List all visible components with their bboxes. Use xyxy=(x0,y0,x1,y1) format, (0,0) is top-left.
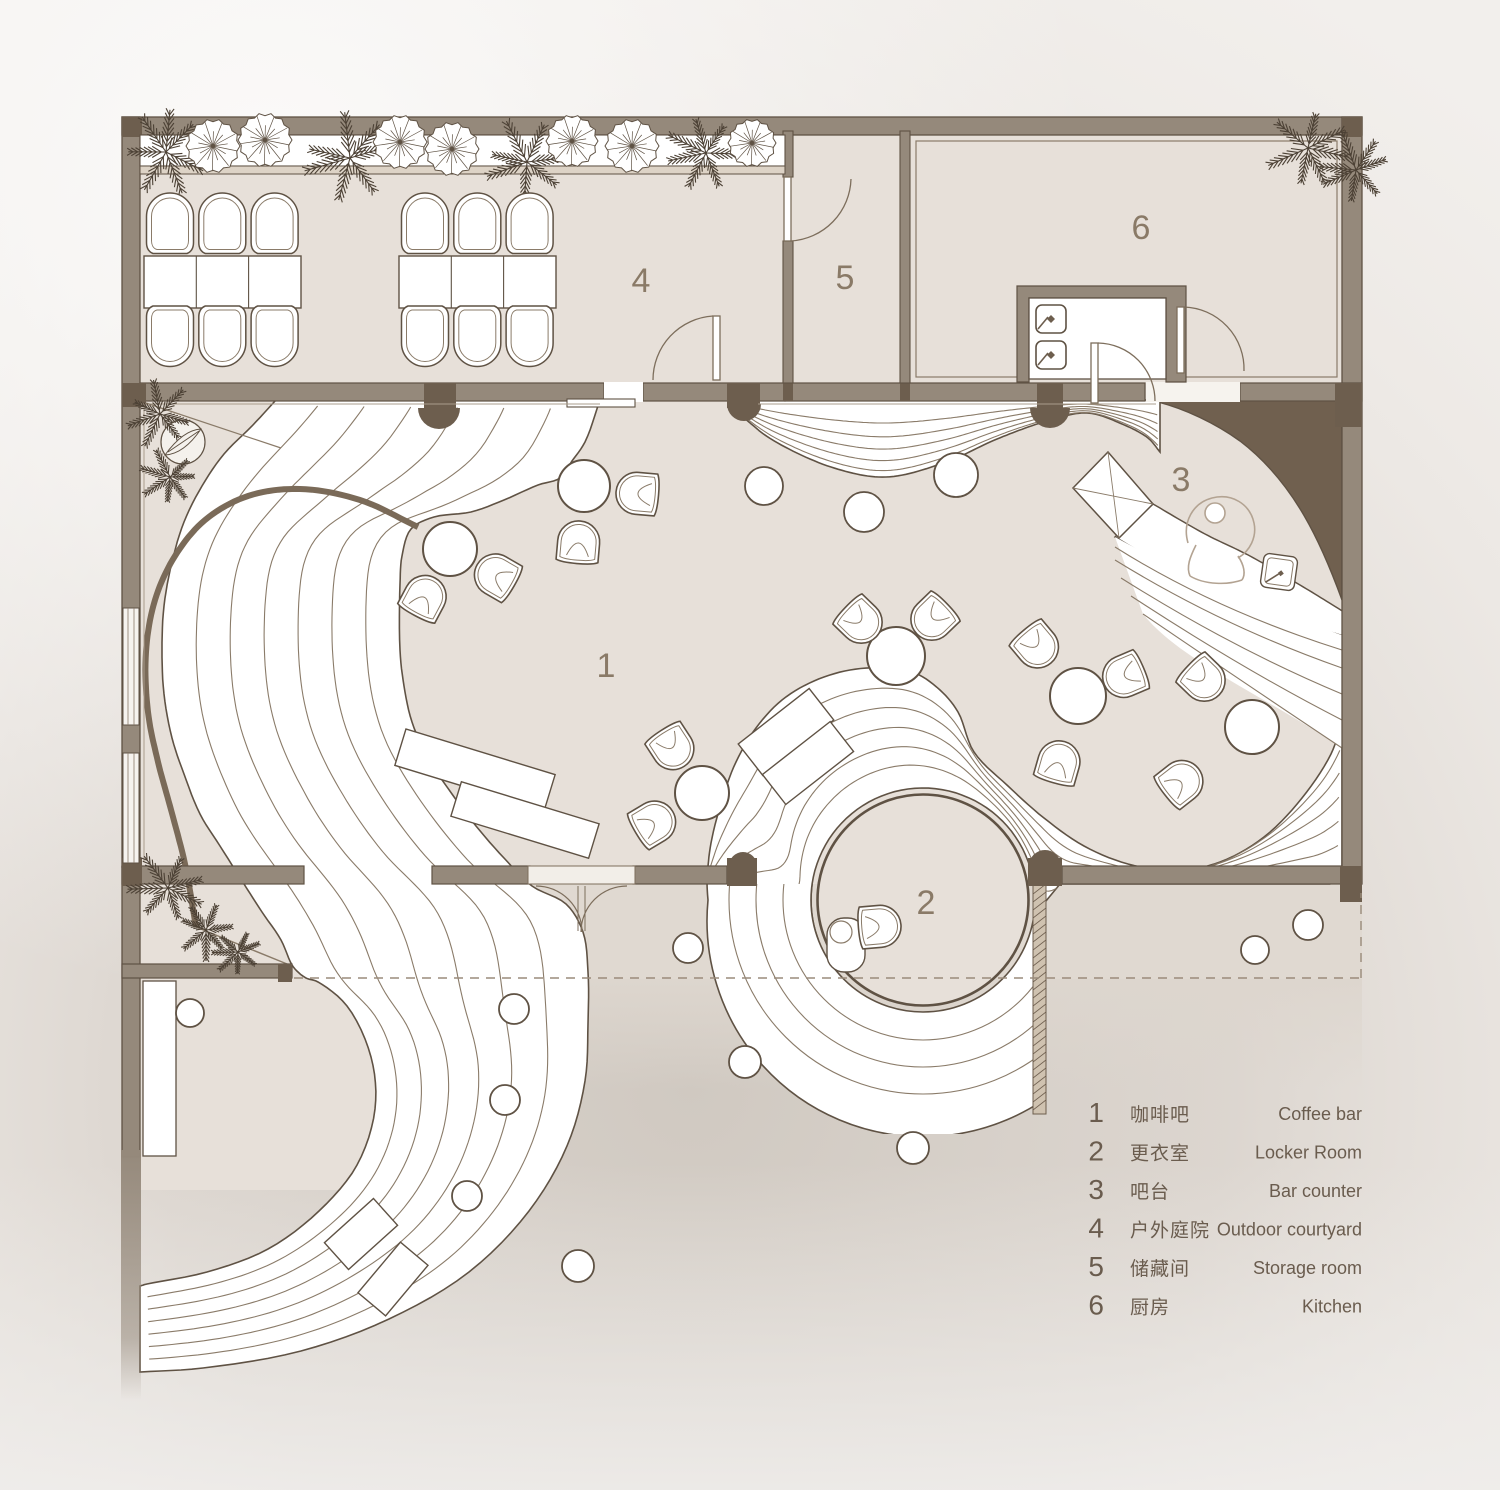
svg-text:2: 2 xyxy=(917,884,936,922)
svg-text:5: 5 xyxy=(836,259,855,297)
svg-text:储藏间: 储藏间 xyxy=(1130,1258,1190,1280)
svg-text:Bar counter: Bar counter xyxy=(1269,1181,1362,1201)
svg-text:3: 3 xyxy=(1172,461,1191,499)
svg-text:1: 1 xyxy=(1088,1097,1104,1128)
svg-text:6: 6 xyxy=(1132,209,1151,247)
svg-text:5: 5 xyxy=(1088,1251,1104,1282)
svg-text:Outdoor courtyard: Outdoor courtyard xyxy=(1217,1220,1362,1240)
svg-text:6: 6 xyxy=(1088,1290,1104,1321)
svg-text:更衣室: 更衣室 xyxy=(1130,1143,1190,1165)
svg-text:1: 1 xyxy=(597,647,616,685)
svg-text:Kitchen: Kitchen xyxy=(1302,1297,1362,1317)
svg-text:3: 3 xyxy=(1088,1174,1104,1205)
svg-text:4: 4 xyxy=(1088,1213,1104,1244)
svg-text:厨房: 厨房 xyxy=(1130,1297,1170,1319)
svg-text:4: 4 xyxy=(632,262,651,300)
svg-text:吧台: 吧台 xyxy=(1130,1181,1170,1203)
svg-text:咖啡吧: 咖啡吧 xyxy=(1130,1104,1190,1126)
svg-text:Coffee bar: Coffee bar xyxy=(1278,1104,1362,1124)
svg-text:Locker Room: Locker Room xyxy=(1255,1143,1362,1163)
svg-text:Storage room: Storage room xyxy=(1253,1258,1362,1278)
svg-text:2: 2 xyxy=(1088,1136,1104,1167)
svg-text:户外庭院: 户外庭院 xyxy=(1130,1220,1210,1242)
